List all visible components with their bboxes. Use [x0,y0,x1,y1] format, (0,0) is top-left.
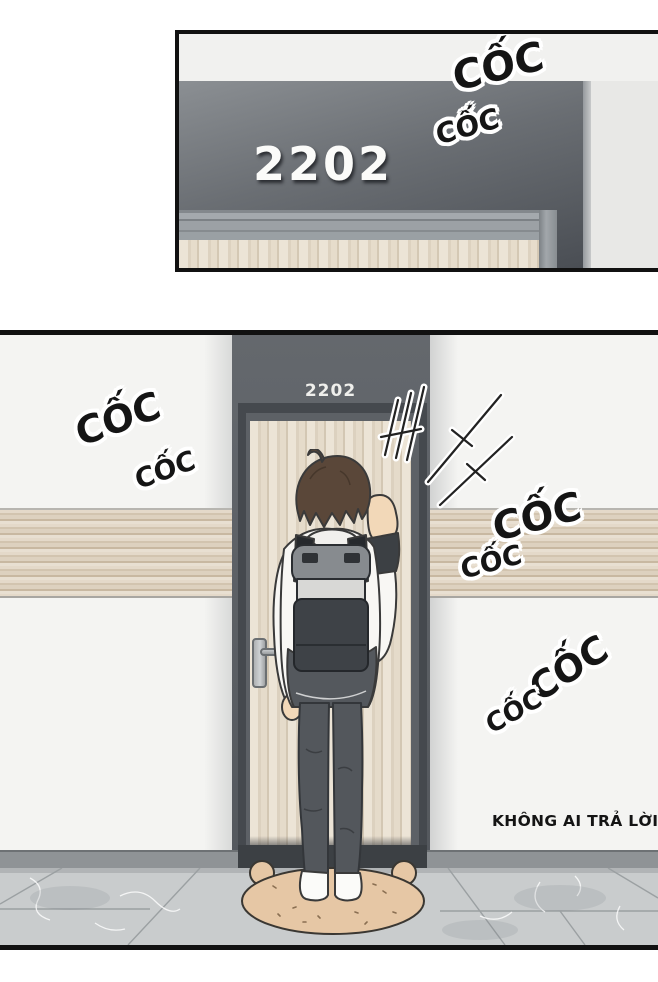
backpack-flap [292,545,370,583]
baseboard-left [0,850,240,870]
sock-right [335,873,362,900]
baseboard-right [423,850,658,870]
door-top-wood [179,240,539,268]
hair [296,456,370,527]
hair-ahoge [308,449,324,462]
backpack-body [294,599,368,671]
wall-corner-edge [583,81,591,268]
wall-upper-strip [179,34,658,81]
backpack-slot-right [344,553,360,563]
pants-right-leg [333,703,362,875]
door-number-plate-large: 2202 [253,137,393,191]
sfx-knock-8: CỐC [481,683,546,740]
backpack-band [297,579,365,601]
door-frame-top-molding [179,210,555,240]
backpack-slot-left [302,553,318,563]
narration-caption: KHÔNG AI TRẢ LỜI [492,812,658,830]
panel-bottom-hallway: 2202 [0,330,658,950]
sock-left [300,871,328,900]
door-frame-corner [539,210,557,268]
knock-impact-lines [375,368,525,523]
comic-page: 2202 CỐC CỐC [0,0,658,982]
sfx-knock-3: CỐC [71,383,166,456]
sfx-knock-4: CỐC [132,445,199,496]
panel-top-door-closeup: 2202 CỐC CỐC [175,30,658,272]
pants-left-leg [299,703,329,875]
wood-wainscot-left [0,508,232,598]
